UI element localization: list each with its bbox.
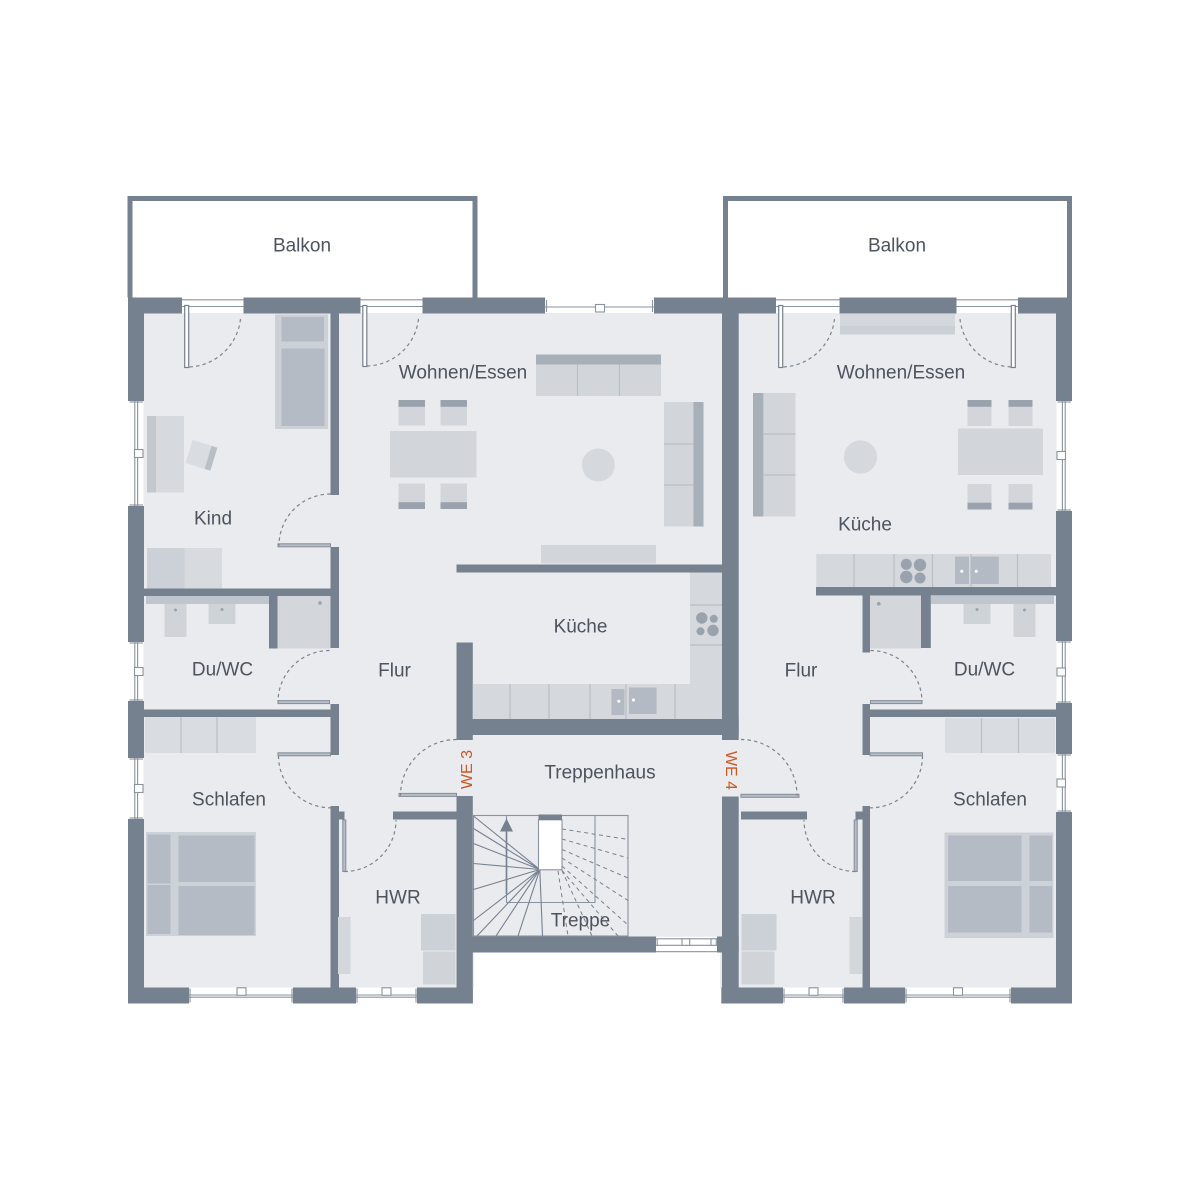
svg-text:Küche: Küche bbox=[838, 515, 892, 536]
svg-text:HWR: HWR bbox=[375, 888, 420, 909]
svg-text:Schlafen: Schlafen bbox=[192, 790, 266, 811]
svg-text:Balkon: Balkon bbox=[273, 236, 331, 257]
svg-text:Treppe: Treppe bbox=[551, 911, 611, 932]
svg-text:Küche: Küche bbox=[554, 617, 608, 638]
svg-text:Schlafen: Schlafen bbox=[953, 790, 1027, 811]
svg-text:WE 4: WE 4 bbox=[722, 751, 739, 790]
svg-text:Treppenhaus: Treppenhaus bbox=[544, 763, 655, 784]
svg-text:Wohnen/Essen: Wohnen/Essen bbox=[399, 363, 528, 384]
svg-text:WE 3: WE 3 bbox=[459, 750, 476, 789]
svg-text:Du/WC: Du/WC bbox=[192, 660, 253, 681]
svg-text:Flur: Flur bbox=[785, 661, 818, 682]
svg-text:Kind: Kind bbox=[194, 509, 232, 530]
svg-text:HWR: HWR bbox=[790, 888, 835, 909]
svg-text:Balkon: Balkon bbox=[868, 236, 926, 257]
svg-text:Wohnen/Essen: Wohnen/Essen bbox=[837, 363, 966, 384]
svg-text:Du/WC: Du/WC bbox=[954, 660, 1015, 681]
svg-text:Flur: Flur bbox=[378, 661, 411, 682]
